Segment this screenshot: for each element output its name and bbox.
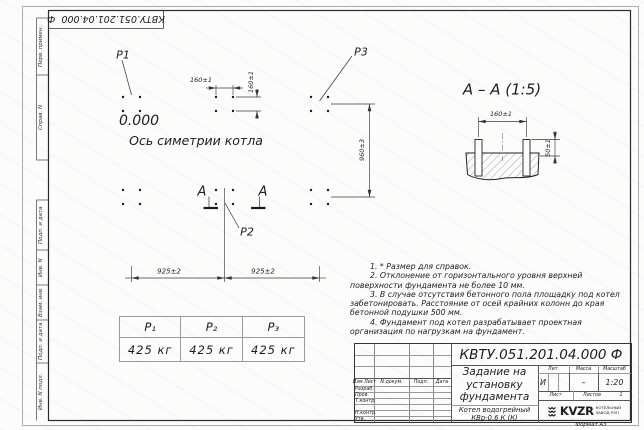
tb-value-sheets-total: 1 [611,391,631,400]
note-4: 4. Фундамент под котел разрабатывает про… [350,318,636,337]
note-1: 1. * Размер для справок. [350,262,636,271]
sidebar-cell-podp-data-1: Подп. и дата [36,200,48,250]
company-name-line2: ЗАВОД РЭП [596,411,622,416]
title-block: Изм.Лист N докум. Подп. Дата Разраб. Про… [354,343,632,423]
load-point-p1-label: Р1 [116,50,130,61]
technical-notes: 1. * Размер для справок. 2. Отклонение о… [350,262,636,336]
load-table-value-p2: 425 кг [181,338,242,361]
tb-header-izm-list: Изм.Лист [355,378,374,386]
tb-value-mass: – [569,373,599,391]
tb-header-n-dokum: N докум. [374,378,409,386]
tb-header-sheet: Лист [538,391,574,400]
load-table-header-p1: Р₁ [120,317,181,338]
load-table-header-p3: Р₃ [243,317,304,338]
load-table-value-p3: 425 кг [243,338,304,361]
anchor-bolt-left [475,140,482,177]
tb-drawing-title: Задание на установку фундамента [451,365,539,405]
plan-dimensions [125,85,375,282]
company-logo-text: KVZR [560,404,594,418]
tb-header-sheets: Листов [573,391,611,400]
load-table-value-p1: 425 кг [120,338,181,361]
dim-960: 960±3 [359,139,366,161]
flipped-doc-number-stamp: КВТУ.051.201.04.000 Ф [47,13,165,23]
tb-header-data: Дата [433,378,451,386]
format-label: Формат А3 [575,422,606,428]
load-point-p2-label: Р2 [240,227,254,238]
dim-160-vertical: 160±1 [248,71,255,93]
boiler-symmetry-axis-label: Ось симетрии котла [129,135,263,148]
anchor-bolt-right [523,140,530,177]
tb-row-utv: Утв. [355,416,374,422]
sidebar-cell-podp-data-2: Подп. и дата [36,320,48,363]
sidebar-cell-vzam-inv: Взам. инв. N [36,285,48,320]
sidebar-cell-sprav-n: Справ. N [36,75,48,160]
section-cut-marks [204,197,266,209]
tb-product-name: Котел водогрейный КВр-0,6 К (К) [451,405,539,423]
section-dim-50: 50±1 [545,139,552,157]
tb-doc-number: КВТУ.051.201.04.000 Ф [451,344,631,366]
dim-160-horizontal: 160±1 [190,77,212,84]
note-2: 2. Отклонение от горизонтального уровня … [350,271,636,290]
load-point-p3-label: Р3 [354,47,368,58]
tb-value-scale: 1:20 [598,373,631,391]
section-view-title: А – А (1:5) [463,83,541,98]
elevation-mark: 0.000 [119,114,159,128]
section-dim-160: 160±1 [490,111,512,118]
boiler-coil-icon [548,406,556,417]
tb-header-podp: Подп. [409,378,433,386]
section-mark-a-left: А [198,186,207,199]
sidebar-cell-perv-primen: Перв. примен. [36,18,48,75]
tb-row-tkontr: Т.контр. [355,398,374,404]
section-mark-a-right: А [259,186,268,199]
sidebar-cell-inv-dubl: Инв. N дубл. [36,250,48,285]
sidebar-cell-inv-podl: Инв. N подл. [36,363,48,420]
dim-925-left: 925±2 [157,269,181,276]
load-table: Р₁ Р₂ Р₃ 425 кг 425 кг 425 кг [119,316,305,362]
tb-company: KVZR КОТЕЛЬНЫЙ ЗАВОД РЭП [538,400,631,422]
dim-925-right: 925±2 [251,269,275,276]
drawing-sheet: Перв. примен. Справ. N Подп. и дата Инв.… [0,0,644,430]
note-3: 3. В случае отсутствия бетонного пола пл… [350,290,636,318]
load-table-header-p2: Р₂ [181,317,242,338]
